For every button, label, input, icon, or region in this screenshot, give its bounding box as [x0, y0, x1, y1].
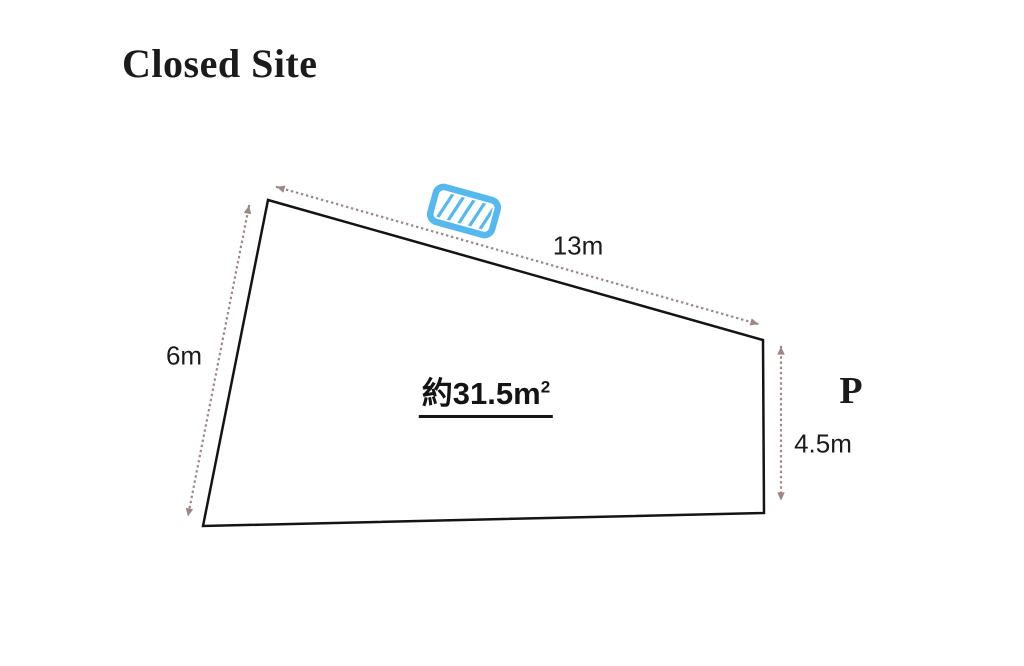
area-value: 31.5 [453, 376, 513, 411]
area-unit-exponent: 2 [541, 378, 550, 397]
site-diagram [0, 0, 1024, 666]
dimension-label-right: 4.5m [794, 429, 852, 460]
parking-label: P [839, 369, 862, 413]
hatched-rectangle-marker-icon [428, 185, 499, 237]
area-label: 約31.5m2 [419, 368, 553, 418]
site-outline [203, 200, 764, 526]
area-prefix: 約 [422, 376, 453, 411]
marker-outline [428, 185, 499, 237]
site-plan-canvas: Closed Site 13m [0, 0, 1024, 666]
area-unit: m [513, 376, 541, 411]
dimension-label-top: 13m [553, 231, 604, 262]
dimension-label-left: 6m [166, 341, 202, 372]
